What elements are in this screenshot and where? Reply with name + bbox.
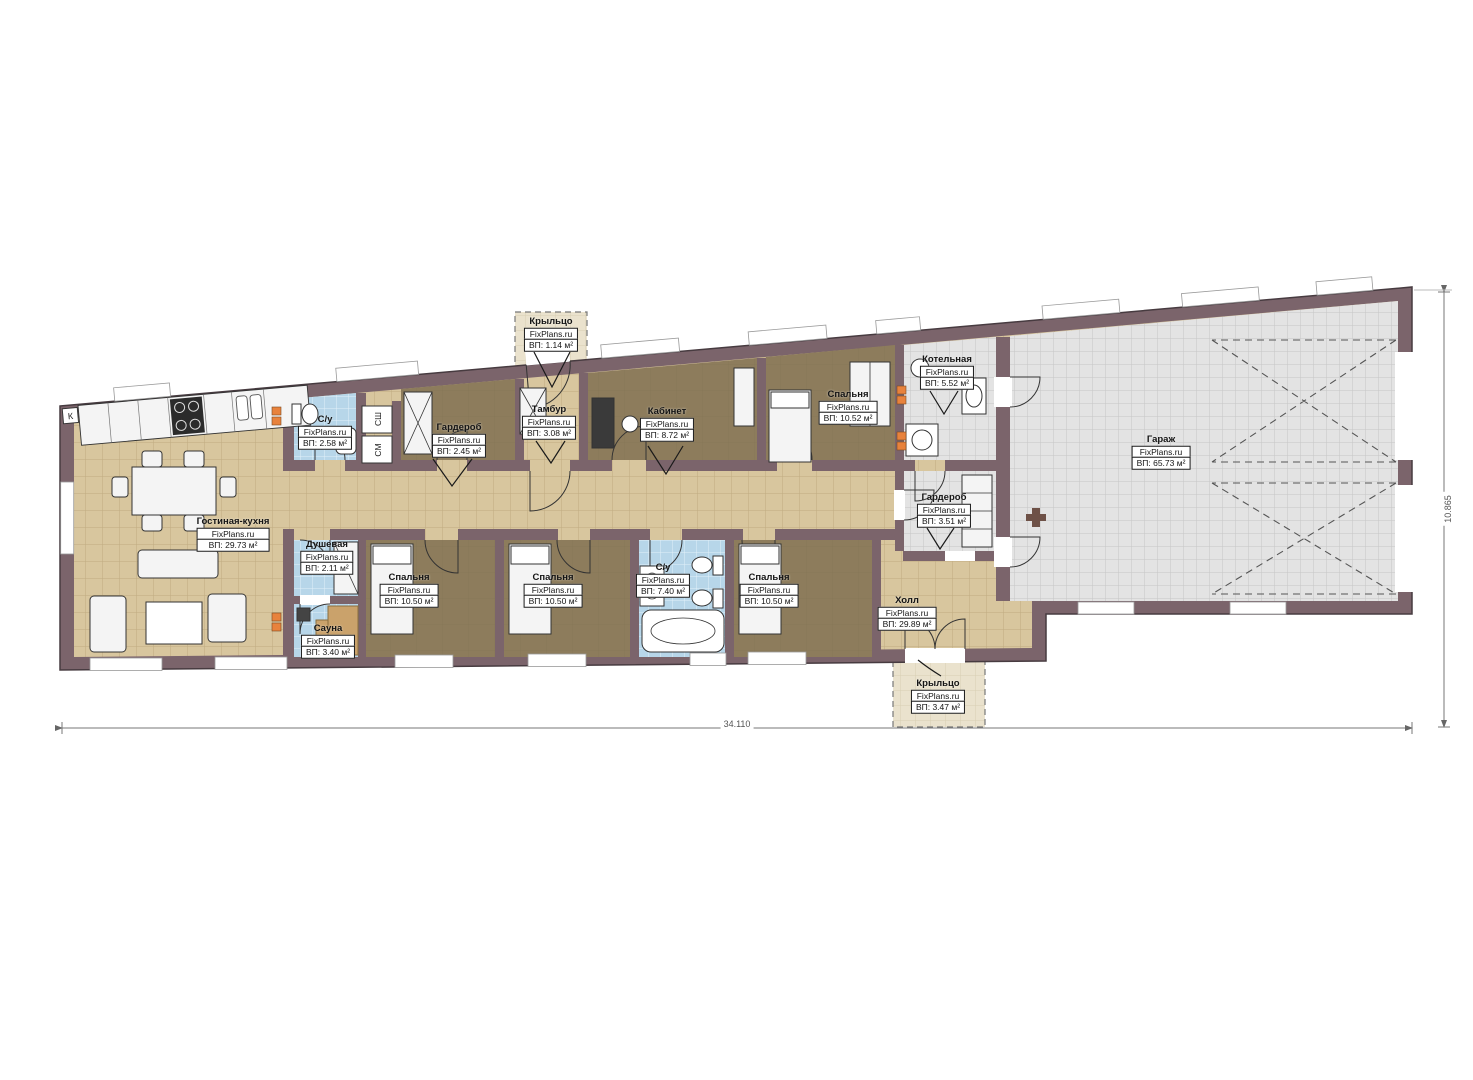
stove-icon [170, 397, 205, 436]
room-label-garage: Гараж FixPlans.ru ВП: 65.73 м² [1132, 435, 1191, 470]
brand-box: FixPlans.ru [636, 573, 690, 586]
room-label-shower-room: Душевая FixPlans.ru ВП: 2.11 м² [300, 540, 353, 575]
dining-table [132, 467, 216, 515]
room-label-bedroom-top: Спальня FixPlans.ru ВП: 10.52 м² [819, 390, 878, 425]
room-label-porch-top: Крыльцо FixPlans.ru ВП: 1.14 м² [524, 317, 578, 352]
area-box: ВП: 10.50 м² [740, 595, 799, 608]
floor-plan: К [0, 0, 1473, 1080]
room-label-bathroom-top: С/у FixPlans.ru ВП: 2.58 м² [298, 415, 352, 450]
room-label-wardrobe-top: Гардероб FixPlans.ru ВП: 2.45 м² [432, 423, 486, 458]
brand-box: FixPlans.ru [300, 550, 353, 563]
brand-box: FixPlans.ru [522, 415, 576, 428]
area-box: ВП: 2.45 м² [432, 445, 486, 458]
washer-label: СМ [373, 443, 383, 456]
brand-box: FixPlans.ru [524, 583, 583, 596]
brand-box: FixPlans.ru [917, 503, 971, 516]
brand-box: FixPlans.ru [740, 583, 799, 596]
area-box: ВП: 3.47 м² [911, 701, 965, 714]
area-box: ВП: 2.58 м² [298, 437, 352, 450]
area-box: ВП: 3.51 м² [917, 515, 971, 528]
dimension-length: 34.110 [721, 719, 754, 729]
dimension-depth: 10.865 [1443, 492, 1453, 526]
brand-box: FixPlans.ru [911, 689, 965, 702]
room-label-vestibule: Тамбур FixPlans.ru ВП: 3.08 м² [522, 405, 576, 440]
brand-box: FixPlans.ru [301, 634, 355, 647]
area-box: ВП: 10.50 м² [524, 595, 583, 608]
area-box: ВП: 1.14 м² [524, 339, 578, 352]
brand-box: FixPlans.ru [432, 433, 486, 446]
area-box: ВП: 29.73 м² [197, 539, 270, 552]
room-label-wardrobe-2: Гардероб FixPlans.ru ВП: 3.51 м² [917, 493, 971, 528]
room-label-bedroom-3: Спальня FixPlans.ru ВП: 10.50 м² [740, 573, 799, 608]
dryer-label: СШ [373, 412, 383, 426]
room-label-porch-bottom: Крыльцо FixPlans.ru ВП: 3.47 м² [911, 679, 965, 714]
room-label-bedroom-2: Спальня FixPlans.ru ВП: 10.50 м² [524, 573, 583, 608]
sofa [138, 550, 218, 578]
brand-box: FixPlans.ru [920, 365, 974, 378]
area-box: ВП: 65.73 м² [1132, 457, 1191, 470]
sink-icon [236, 396, 249, 421]
room-label-boiler: Котельная FixPlans.ru ВП: 5.52 м² [920, 355, 974, 390]
room-label-sauna: Сауна FixPlans.ru ВП: 3.40 м² [301, 624, 355, 659]
brand-box: FixPlans.ru [524, 327, 578, 340]
room-label-bathroom-2: С/у FixPlans.ru ВП: 7.40 м² [636, 563, 690, 598]
area-box: ВП: 10.50 м² [380, 595, 439, 608]
area-box: ВП: 2.11 м² [300, 562, 353, 575]
brand-box: FixPlans.ru [298, 425, 352, 438]
brand-box: FixPlans.ru [380, 583, 439, 596]
desk [592, 398, 614, 448]
room-label-hall: Холл FixPlans.ru ВП: 29.89 м² [878, 596, 937, 631]
area-box: ВП: 7.40 м² [636, 585, 690, 598]
room-label-office: Кабинет FixPlans.ru ВП: 8.72 м² [640, 407, 694, 442]
brand-box: FixPlans.ru [878, 606, 937, 619]
area-box: ВП: 10.52 м² [819, 412, 878, 425]
area-box: ВП: 8.72 м² [640, 429, 694, 442]
area-box: ВП: 5.52 м² [920, 377, 974, 390]
area-box: ВП: 29.89 м² [878, 618, 937, 631]
bathtub-icon [642, 610, 724, 652]
area-box: ВП: 3.40 м² [301, 646, 355, 659]
brand-box: FixPlans.ru [1132, 445, 1191, 458]
brand-box: FixPlans.ru [640, 417, 694, 430]
brand-box: FixPlans.ru [819, 400, 878, 413]
room-label-bedroom-1: Спальня FixPlans.ru ВП: 10.50 м² [380, 573, 439, 608]
area-box: ВП: 3.08 м² [522, 427, 576, 440]
room-label-living-kitchen: Гостиная-кухня FixPlans.ru ВП: 29.73 м² [197, 517, 270, 552]
